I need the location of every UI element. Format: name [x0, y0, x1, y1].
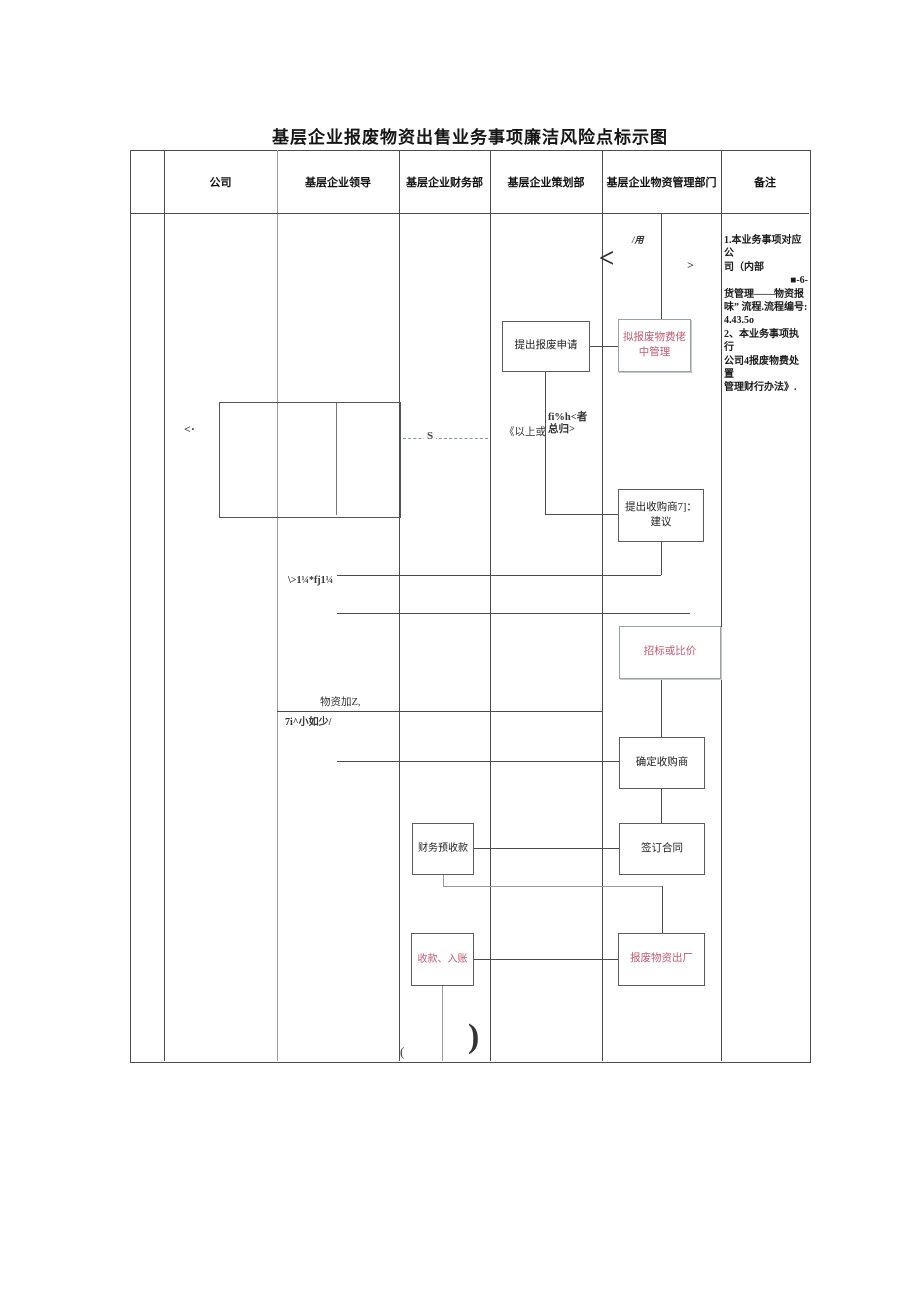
flow-box-central-mgmt: 拟报废物费佬中管理 [618, 319, 691, 372]
annotation-zongzhe: fi%h<者总归> [548, 412, 596, 436]
annotation-small-gt: > [687, 258, 694, 273]
annotation-wuzi-jia: 物资加Z, [320, 694, 361, 709]
column-divider-leader-finance [399, 150, 400, 1061]
table-frame [130, 150, 811, 1063]
flow-box-buyer-confirm: 确定收购商 [619, 737, 705, 789]
annotation-garble-small: 7i^小如少/ [285, 713, 331, 728]
connector-precollect-right [443, 886, 662, 887]
flow-box-finance-precollect: 财务预收款 [412, 823, 474, 875]
connector-approve-line [337, 613, 690, 614]
annotation-yishang: 《以上或 [504, 424, 546, 439]
column-divider-company-leader [277, 150, 278, 1061]
header-bottom-line [130, 213, 809, 214]
connector-apply-down [545, 371, 546, 515]
connector-start-down [661, 214, 662, 320]
flow-box-scrap-out: 报废物资出厂 [618, 933, 705, 986]
note-line: 公司4报废物费处置 [724, 355, 808, 382]
connector-precollect-to-contract [473, 848, 619, 849]
annotation-big-lt: < [599, 243, 614, 274]
connector-mid-line [277, 711, 602, 712]
note-line: 货管理——物资报 [724, 288, 808, 301]
annotation-paren-open: ( [400, 1044, 404, 1060]
note-line: 管理财行办法》. [724, 381, 808, 394]
empty-approval-rect [219, 402, 401, 518]
note-line: 味” 流程.流程编号: [724, 301, 808, 314]
dashed-s-line [403, 438, 488, 439]
annotation-garble-approve: \>1¼*fj1¼ [288, 575, 333, 586]
notes-block: 1.本业务事项对应公 司（内部 ■-6- 货管理——物资报 味” 流程.流程编号… [724, 234, 808, 395]
connector-to-buyer-suggest [545, 514, 618, 515]
flow-box-scrap-apply: 提出报废申请 [502, 321, 590, 372]
column-divider-index [164, 150, 165, 1061]
note-line: 司（内部 [724, 261, 808, 274]
flow-box-collect-book: 收款、入账 [411, 933, 474, 986]
flow-box-buyer-suggest: 提出收购商7]：建议 [618, 489, 704, 542]
header-material-dept: 基层企业物资管理部门 [602, 151, 721, 213]
header-company: 公司 [164, 151, 277, 213]
flow-box-bidding: 招标或比价 [619, 626, 721, 679]
document-page: 基层企业报废物资出售业务事项廉洁风险点标示图 公司 基层企业领导 基层企业财务部… [0, 0, 920, 1301]
page-title: 基层企业报废物资出售业务事项廉洁风险点标示图 [130, 123, 810, 148]
connector-to-scrap-out [662, 886, 663, 933]
note-line: 2、本业务事项执行 [724, 328, 808, 355]
annotation-lt-dot: <· [184, 422, 195, 437]
column-divider-material-notes [721, 150, 722, 1061]
column-divider-finance-planning [490, 150, 491, 1061]
connector-to-confirm [337, 761, 619, 762]
connector-collect-down [442, 985, 443, 1061]
header-finance-dept: 基层企业财务部 [399, 151, 490, 213]
connector-collect-to-scrapout [473, 959, 618, 960]
header-notes: 备注 [721, 151, 809, 213]
connector-bidding-down [661, 678, 662, 737]
empty-rect-divider [336, 403, 337, 515]
connector-precollect-down [443, 874, 444, 886]
connector-suggest-down [661, 541, 662, 575]
annotation-slash-yong: /用 [632, 233, 644, 246]
column-divider-planning-material [602, 150, 603, 1061]
header-planning-dept: 基层企业策划部 [490, 151, 602, 213]
flow-box-sign-contract: 签订合同 [619, 823, 705, 875]
header-leader: 基层企业领导 [277, 151, 399, 213]
annotation-paren-close: ) [468, 1018, 479, 1056]
note-line: 4.43.5o [724, 314, 808, 327]
note-line: ■-6- [724, 274, 808, 287]
connector-suggest-left [337, 575, 661, 576]
note-line: 1.本业务事项对应公 [724, 234, 808, 261]
connector-apply-to-central [589, 346, 618, 347]
connector-confirm-to-contract [661, 788, 662, 823]
s-mark-label: S [424, 430, 436, 442]
